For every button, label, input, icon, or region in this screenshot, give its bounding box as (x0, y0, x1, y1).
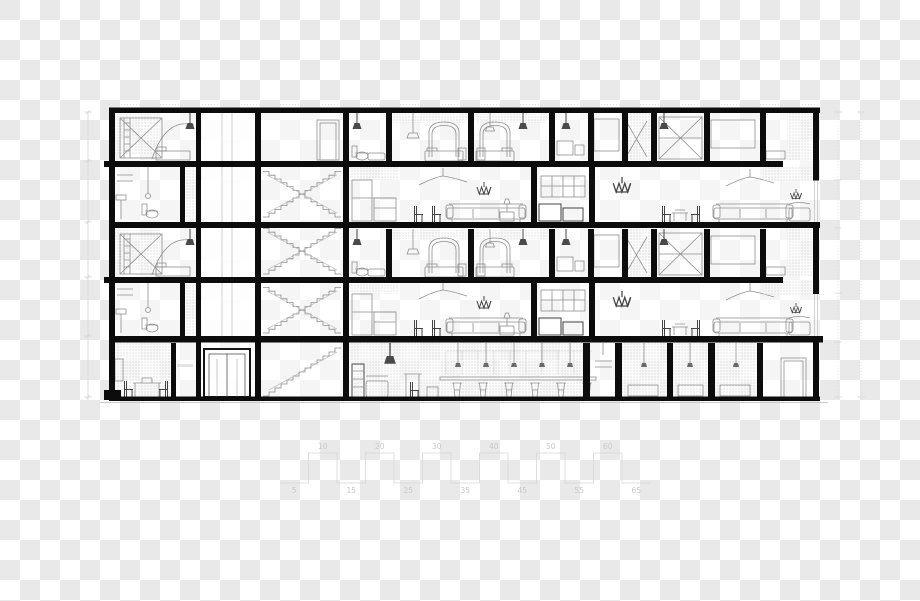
ground-floor (115, 343, 806, 398)
exterior-wall-left (109, 108, 115, 401)
scale-label: 10 (318, 442, 328, 451)
exterior-wall-right (813, 336, 819, 397)
core-wall (343, 113, 349, 397)
exterior-wall-right (813, 108, 819, 181)
exterior-wall-right (813, 222, 819, 293)
room-label-smudge (177, 364, 193, 367)
scale-label: 25 (403, 486, 413, 495)
core-wall (196, 113, 201, 397)
building-section-drawing: 5 15 25 35 45 55 65 10 20 30 40 50 60 (0, 0, 920, 601)
floor-slab (104, 161, 783, 167)
ground-slab (109, 397, 820, 402)
core-wall (255, 113, 261, 397)
scale-label: 40 (489, 442, 499, 451)
scale-label: 20 (375, 442, 385, 451)
scale-label: 35 (460, 486, 470, 495)
scale-bar-wave (280, 453, 651, 483)
scale-label: 55 (574, 486, 584, 495)
scale-label: 45 (517, 486, 527, 495)
scale-label: 65 (631, 486, 641, 495)
elevator-icon (204, 349, 250, 397)
roof-slab (109, 108, 820, 114)
scale-label: 5 (292, 486, 297, 495)
floor-slab (109, 336, 823, 343)
scale-label: 15 (346, 486, 356, 495)
transparent-checkerboard-background: 5 15 25 35 45 55 65 10 20 30 40 50 60 (0, 0, 920, 601)
floor-slab (104, 277, 783, 283)
scale-label: 60 (603, 442, 613, 451)
scale-bar: 5 15 25 35 45 55 65 10 20 30 40 50 60 (280, 442, 651, 495)
scale-label: 50 (546, 442, 556, 451)
floor-slab (109, 222, 820, 228)
scale-label: 30 (432, 442, 442, 451)
